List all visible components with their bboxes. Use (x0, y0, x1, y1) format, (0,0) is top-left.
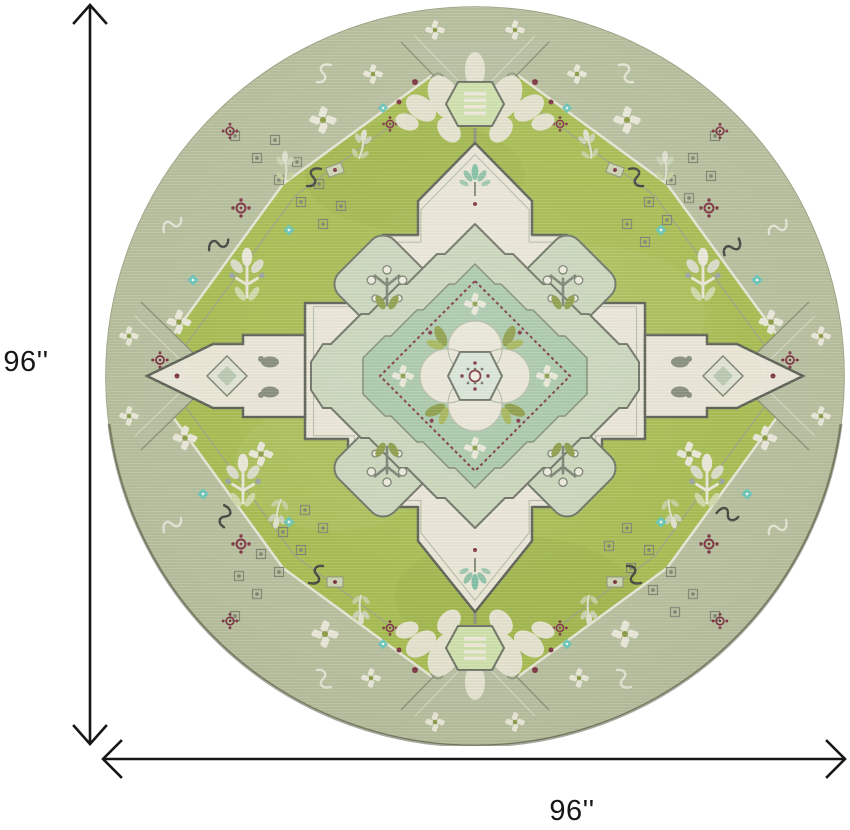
width-dimension-label: 96'' (540, 796, 604, 826)
product-dimension-diagram: 96'' 96'' (0, 0, 850, 830)
rug-texture-overlay (106, 7, 844, 746)
height-dimension-label: 96'' (0, 347, 52, 377)
rug-image (105, 6, 845, 746)
